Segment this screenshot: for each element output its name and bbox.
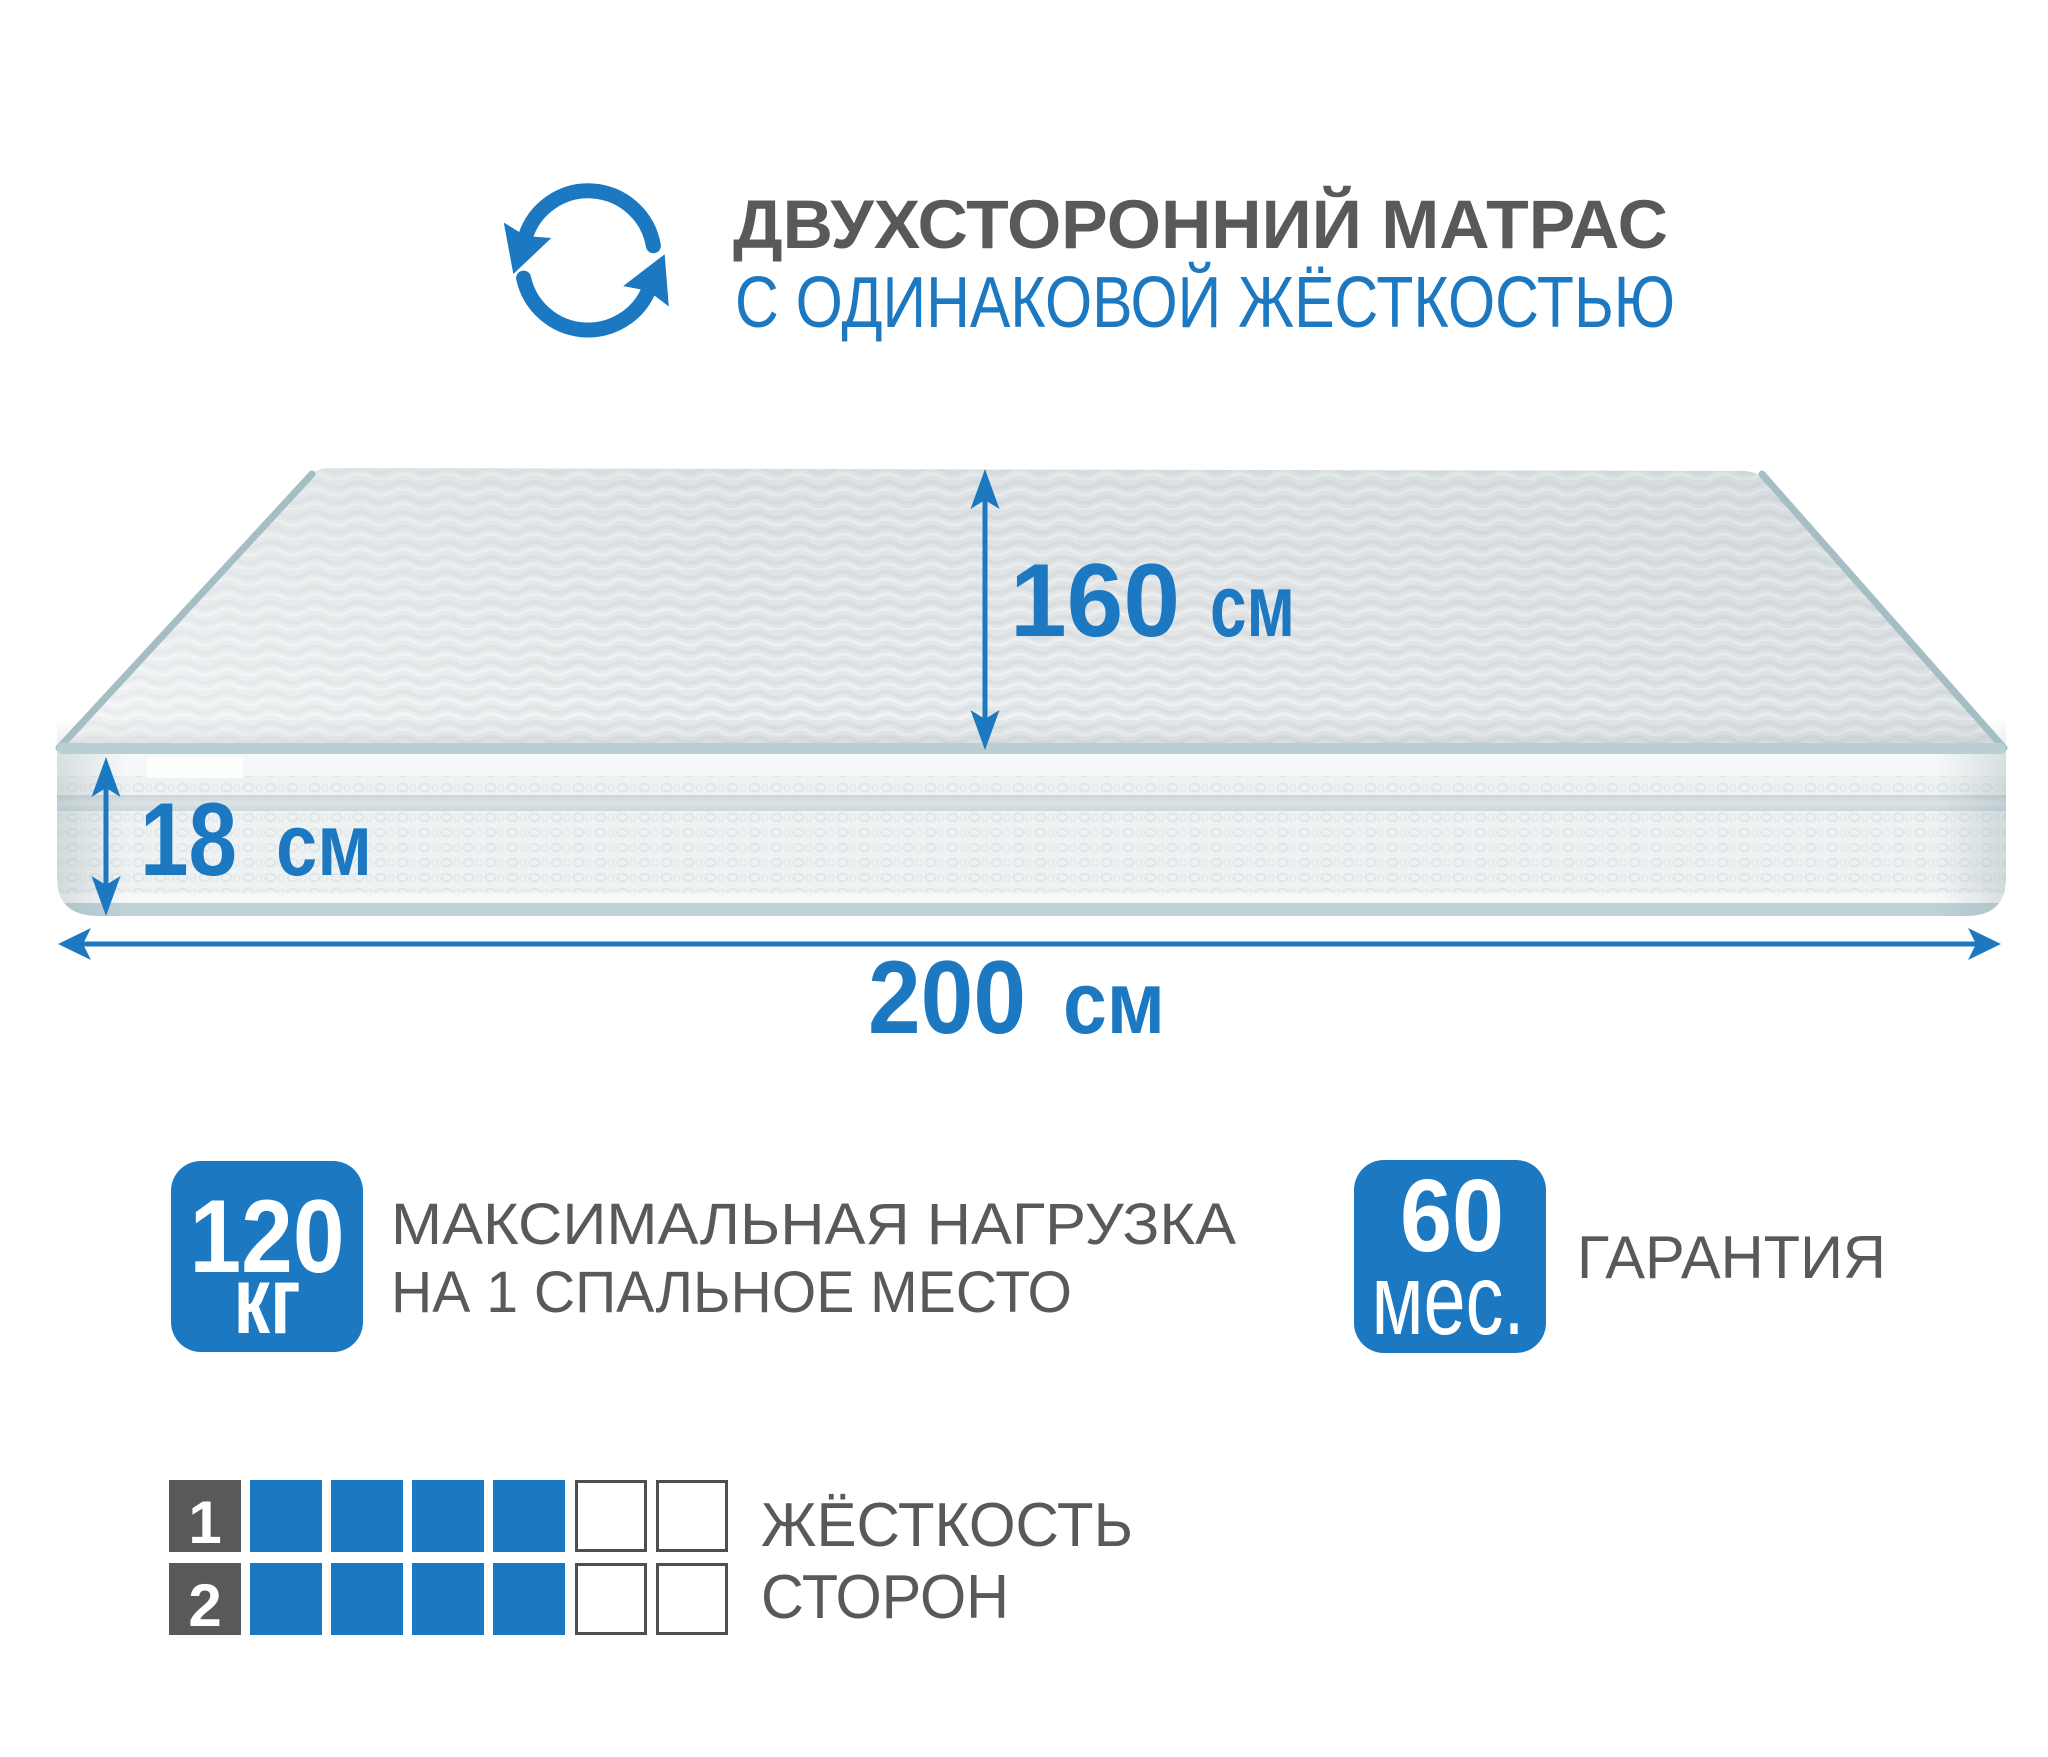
- svg-text:160: 160: [1010, 543, 1180, 659]
- svg-text:НА 1 СПАЛЬНОЕ МЕСТО: НА 1 СПАЛЬНОЕ МЕСТО: [391, 1260, 1072, 1325]
- svg-text:мес.: мес.: [1372, 1244, 1525, 1356]
- svg-text:1: 1: [188, 1489, 221, 1556]
- svg-text:2: 2: [188, 1572, 221, 1639]
- svg-text:18: 18: [140, 782, 237, 898]
- svg-text:МАКСИМАЛЬНАЯ НАГРУЗКА: МАКСИМАЛЬНАЯ НАГРУЗКА: [391, 1192, 1236, 1257]
- svg-text:ДВУХСТОРОННИЙ МАТРАС: ДВУХСТОРОННИЙ МАТРАС: [733, 185, 1668, 263]
- svg-text:С ОДИНАКОВОЙ ЖЁСТКОСТЬЮ: С ОДИНАКОВОЙ ЖЁСТКОСТЬЮ: [735, 261, 1675, 343]
- svg-text:ЖЁСТКОСТЬ: ЖЁСТКОСТЬ: [761, 1491, 1133, 1560]
- svg-text:200: 200: [868, 940, 1026, 1056]
- svg-text:см: см: [1063, 953, 1165, 1052]
- svg-text:кг: кг: [234, 1247, 301, 1354]
- svg-text:см: см: [276, 795, 372, 894]
- svg-text:ГАРАНТИЯ: ГАРАНТИЯ: [1577, 1224, 1886, 1291]
- svg-text:см: см: [1210, 556, 1295, 655]
- svg-text:СТОРОН: СТОРОН: [761, 1563, 1009, 1632]
